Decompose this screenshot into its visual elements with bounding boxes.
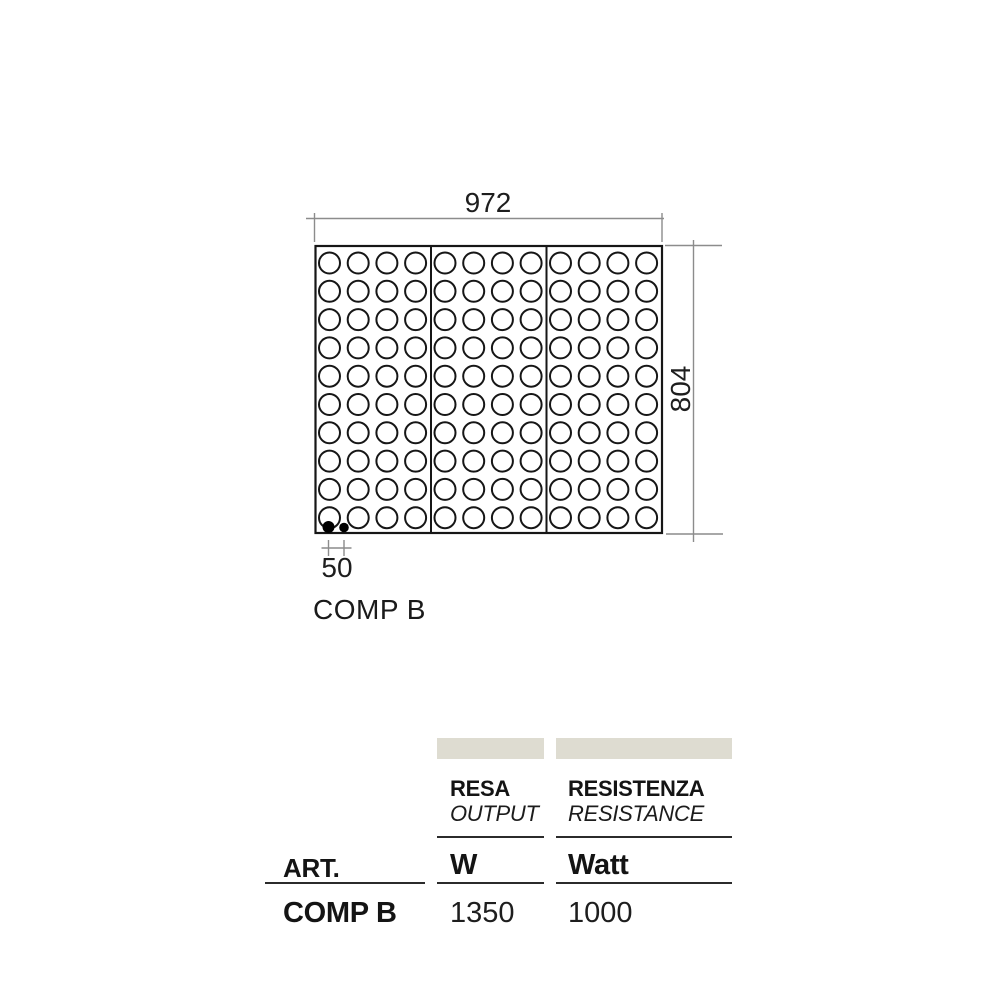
hole — [463, 337, 484, 358]
hole — [607, 422, 628, 443]
hole — [636, 451, 657, 472]
hole — [550, 479, 571, 500]
hole — [550, 366, 571, 387]
hole — [550, 253, 571, 274]
hole — [636, 422, 657, 443]
resa-header-swatch — [437, 738, 544, 759]
hole — [579, 281, 600, 302]
hole — [607, 281, 628, 302]
hole — [521, 309, 542, 330]
hole — [607, 479, 628, 500]
width-dimension: 972 — [306, 187, 664, 242]
hole — [579, 337, 600, 358]
hole — [492, 253, 513, 274]
hole — [435, 281, 456, 302]
hole — [463, 253, 484, 274]
hole — [521, 337, 542, 358]
hole — [319, 253, 340, 274]
hole — [348, 337, 369, 358]
hole — [636, 281, 657, 302]
hole — [319, 422, 340, 443]
hole — [435, 394, 456, 415]
hole — [435, 479, 456, 500]
hole — [607, 451, 628, 472]
hole — [405, 366, 426, 387]
marker-dot — [323, 521, 335, 533]
hole-grid — [319, 253, 657, 529]
hole — [607, 309, 628, 330]
hole — [521, 507, 542, 528]
hole — [463, 394, 484, 415]
hole — [435, 422, 456, 443]
hole — [435, 309, 456, 330]
hole — [492, 451, 513, 472]
hole — [405, 394, 426, 415]
hole — [463, 422, 484, 443]
hole — [348, 309, 369, 330]
hole — [550, 451, 571, 472]
hole — [435, 337, 456, 358]
resistenza-unit-rule — [556, 882, 732, 884]
hole — [492, 422, 513, 443]
art-header: ART. — [283, 853, 340, 884]
resistenza-value: 1000 — [568, 897, 633, 930]
hole — [579, 366, 600, 387]
hole — [405, 337, 426, 358]
hole — [348, 253, 369, 274]
hole — [607, 366, 628, 387]
hole — [405, 422, 426, 443]
hole — [636, 253, 657, 274]
hole — [435, 366, 456, 387]
hole — [636, 479, 657, 500]
hole — [550, 309, 571, 330]
hole — [435, 451, 456, 472]
hole — [521, 479, 542, 500]
hole — [550, 337, 571, 358]
hole — [348, 422, 369, 443]
resistenza-header-rule — [556, 836, 732, 838]
hole — [319, 281, 340, 302]
width-dimension-label: 972 — [465, 187, 512, 218]
hole — [579, 422, 600, 443]
hole — [521, 281, 542, 302]
hole — [579, 507, 600, 528]
resa-column-title: RESA — [450, 776, 510, 802]
art-unit-rule — [265, 882, 425, 884]
hole — [636, 309, 657, 330]
hole — [579, 309, 600, 330]
hole — [376, 366, 397, 387]
pitch-dimension: 50 — [321, 540, 352, 583]
hole — [376, 451, 397, 472]
hole — [319, 479, 340, 500]
hole — [435, 507, 456, 528]
hole — [607, 253, 628, 274]
hole — [636, 507, 657, 528]
resa-value: 1350 — [450, 897, 515, 930]
hole — [492, 281, 513, 302]
hole — [376, 422, 397, 443]
hole — [521, 451, 542, 472]
hole — [376, 337, 397, 358]
hole — [348, 394, 369, 415]
hole — [463, 479, 484, 500]
hole — [463, 451, 484, 472]
hole — [579, 479, 600, 500]
hole — [579, 253, 600, 274]
hole — [521, 394, 542, 415]
hole — [376, 479, 397, 500]
resistenza-column-subtitle: RESISTANCE — [568, 801, 704, 827]
panel-drawing-svg: 972 804 50 COMP B — [0, 0, 1000, 660]
hole — [348, 479, 369, 500]
hole — [492, 479, 513, 500]
hole — [376, 507, 397, 528]
pitch-dimension-label: 50 — [321, 552, 352, 583]
hole — [607, 394, 628, 415]
resa-header-rule — [437, 836, 544, 838]
hole — [405, 479, 426, 500]
hole — [463, 281, 484, 302]
marker-dot — [339, 523, 349, 533]
hole — [376, 281, 397, 302]
hole — [405, 281, 426, 302]
hole — [435, 253, 456, 274]
hole — [376, 394, 397, 415]
page: 972 804 50 COMP B RESA OUTPUT RESISTENZA… — [0, 0, 1000, 1000]
resa-column-subtitle: OUTPUT — [450, 801, 539, 827]
hole — [636, 337, 657, 358]
resa-unit: W — [450, 849, 477, 882]
hole — [319, 451, 340, 472]
hole — [405, 309, 426, 330]
resa-unit-rule — [437, 882, 544, 884]
hole — [550, 422, 571, 443]
hole — [521, 422, 542, 443]
hole — [579, 451, 600, 472]
hole — [521, 366, 542, 387]
hole — [550, 507, 571, 528]
height-dimension: 804 — [665, 240, 723, 542]
hole — [607, 337, 628, 358]
hole — [579, 394, 600, 415]
hole — [492, 394, 513, 415]
hole — [463, 309, 484, 330]
hole — [348, 451, 369, 472]
drawing-title: COMP B — [313, 594, 426, 625]
hole — [636, 366, 657, 387]
resistenza-unit: Watt — [568, 849, 629, 882]
hole — [319, 337, 340, 358]
hole — [463, 507, 484, 528]
hole — [492, 337, 513, 358]
hole — [607, 507, 628, 528]
resistenza-header-swatch — [556, 738, 732, 759]
hole — [492, 366, 513, 387]
height-dimension-label: 804 — [665, 366, 696, 413]
hole — [376, 309, 397, 330]
hole — [636, 394, 657, 415]
hole — [376, 253, 397, 274]
hole — [319, 309, 340, 330]
hole — [348, 281, 369, 302]
hole — [550, 281, 571, 302]
hole — [348, 507, 369, 528]
resistenza-column-title: RESISTENZA — [568, 776, 704, 802]
hole — [319, 394, 340, 415]
hole — [319, 366, 340, 387]
hole — [492, 309, 513, 330]
hole — [463, 366, 484, 387]
hole — [521, 253, 542, 274]
art-value: COMP B — [283, 897, 397, 930]
hole — [405, 451, 426, 472]
hole — [405, 253, 426, 274]
hole — [348, 366, 369, 387]
hole — [405, 507, 426, 528]
hole — [492, 507, 513, 528]
hole — [550, 394, 571, 415]
